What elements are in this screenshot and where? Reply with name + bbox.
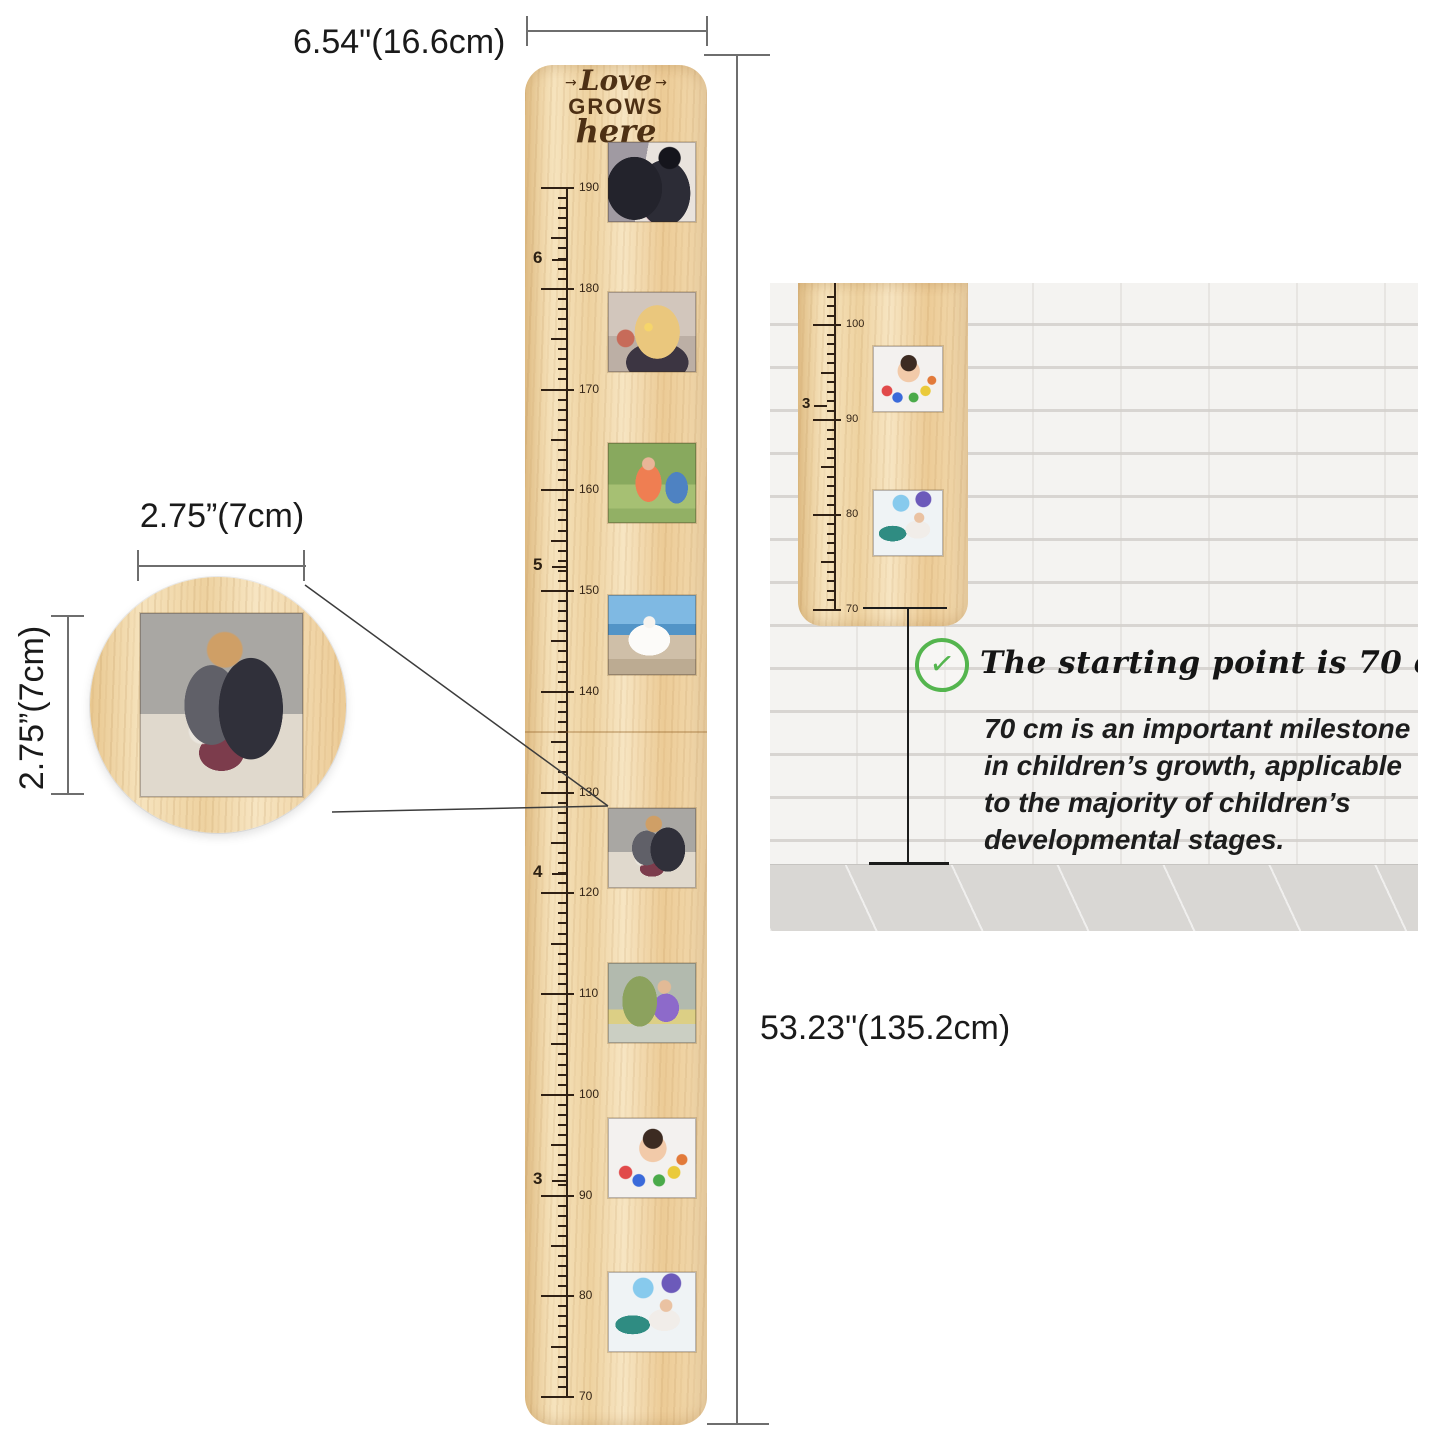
tick-mark bbox=[551, 439, 567, 441]
tick-mark bbox=[827, 523, 835, 525]
tick-mark bbox=[827, 533, 835, 535]
tick-mark bbox=[558, 620, 567, 622]
milestone-description-line: in children’s growth, applicable bbox=[984, 747, 1410, 784]
tick-mark bbox=[558, 1275, 567, 1277]
tick-mark bbox=[827, 315, 835, 317]
tick-mark bbox=[821, 372, 835, 374]
tick-mark bbox=[541, 1396, 574, 1398]
tick-mark bbox=[827, 381, 835, 383]
tick-mark bbox=[558, 368, 567, 370]
inset-height-cap-bottom bbox=[51, 793, 84, 795]
feet-label: 3 bbox=[533, 1169, 542, 1189]
tick-mark bbox=[558, 1305, 567, 1307]
tick-mark bbox=[558, 378, 567, 380]
tick-mark bbox=[558, 1084, 567, 1086]
tick-mark bbox=[551, 237, 567, 239]
inset-width-dimension-label: 2.75”(7cm) bbox=[120, 496, 324, 536]
tick-mark bbox=[558, 530, 567, 532]
tick-mark bbox=[541, 892, 574, 894]
cm-label: 100 bbox=[846, 317, 880, 331]
tick-mark bbox=[558, 1315, 567, 1317]
tick-mark bbox=[558, 802, 567, 804]
tick-mark bbox=[558, 1386, 567, 1388]
tick-mark bbox=[827, 495, 835, 497]
tick-mark bbox=[558, 812, 567, 814]
feet-label: 4 bbox=[533, 862, 542, 882]
tick-mark bbox=[558, 358, 567, 360]
tick-mark bbox=[541, 389, 574, 391]
tick-mark bbox=[558, 771, 567, 773]
tick-mark bbox=[827, 400, 835, 402]
tick-mark bbox=[827, 343, 835, 345]
width-dimension-label: 6.54"(16.6cm) bbox=[293, 22, 505, 62]
tick-mark bbox=[827, 410, 835, 412]
tick-mark bbox=[558, 197, 567, 199]
tick-mark bbox=[558, 832, 567, 834]
tick-mark bbox=[827, 571, 835, 573]
tick-mark bbox=[551, 842, 567, 844]
tick-mark bbox=[558, 1033, 567, 1035]
tick-mark bbox=[558, 701, 567, 703]
mini-growth-chart: 1009080703 bbox=[798, 283, 968, 626]
tick-mark bbox=[558, 278, 567, 280]
feet-dash bbox=[814, 405, 827, 407]
tick-mark bbox=[827, 353, 835, 355]
inset-width-dimension-line bbox=[138, 565, 306, 567]
start-height-line bbox=[863, 607, 947, 609]
tick-mark bbox=[558, 1064, 567, 1066]
growth-chart-ruler: →Love→ GROWS here 1901801701601501401301… bbox=[525, 65, 707, 1425]
feet-dash bbox=[552, 566, 566, 568]
tick-mark bbox=[558, 1134, 567, 1136]
tick-mark bbox=[558, 1325, 567, 1327]
inset-height-cap-top bbox=[51, 615, 84, 617]
tick-mark bbox=[558, 479, 567, 481]
milestone-description-line: to the majority of children’s bbox=[984, 784, 1410, 821]
check-icon: ✓ bbox=[912, 635, 973, 696]
tick-mark bbox=[558, 1023, 567, 1025]
tick-mark bbox=[558, 1053, 567, 1055]
checkmark-glyph: ✓ bbox=[927, 648, 956, 681]
wall-scene-panel: 1009080703 ✓ The starting point is 70 cm… bbox=[770, 283, 1418, 931]
tick-mark bbox=[558, 1184, 567, 1186]
width-dimension-tick-left bbox=[526, 16, 528, 46]
floor-to-70cm-line bbox=[907, 607, 909, 864]
feet-label: 5 bbox=[533, 555, 542, 575]
tick-mark bbox=[541, 691, 574, 693]
tick-mark bbox=[827, 391, 835, 393]
tick-mark bbox=[827, 504, 835, 506]
floor-line-cap bbox=[869, 862, 949, 865]
tick-mark bbox=[558, 570, 567, 572]
tick-mark bbox=[551, 1346, 567, 1348]
tick-mark bbox=[541, 187, 574, 189]
tick-mark bbox=[827, 485, 835, 487]
tick-mark bbox=[558, 751, 567, 753]
birthday-candles-photo bbox=[608, 292, 696, 372]
tick-mark bbox=[558, 912, 567, 914]
tick-mark bbox=[558, 429, 567, 431]
height-dimension-line bbox=[736, 54, 738, 1425]
tick-mark bbox=[541, 489, 574, 491]
tick-mark bbox=[541, 590, 574, 592]
tick-mark bbox=[558, 1366, 567, 1368]
painted-hands-photo bbox=[608, 1118, 696, 1198]
tick-mark bbox=[827, 552, 835, 554]
tick-mark bbox=[813, 419, 841, 421]
tick-mark bbox=[558, 862, 567, 864]
tick-mark bbox=[558, 449, 567, 451]
tick-mark bbox=[558, 1174, 567, 1176]
feet-label: 3 bbox=[802, 394, 810, 414]
tick-mark bbox=[827, 599, 835, 601]
inset-width-tick-right bbox=[303, 550, 305, 581]
marathon-photo bbox=[608, 443, 696, 523]
tick-mark bbox=[558, 580, 567, 582]
tick-mark bbox=[558, 1336, 567, 1338]
tick-mark bbox=[541, 1295, 574, 1297]
tick-mark bbox=[558, 781, 567, 783]
feet-dash bbox=[552, 259, 566, 261]
height-dimension-cap-top bbox=[704, 54, 770, 56]
tick-mark bbox=[821, 561, 835, 563]
school-walk-photo bbox=[608, 963, 696, 1043]
tick-mark bbox=[827, 476, 835, 478]
tick-mark bbox=[558, 1285, 567, 1287]
tick-mark bbox=[558, 328, 567, 330]
tick-mark bbox=[558, 983, 567, 985]
tick-mark bbox=[558, 217, 567, 219]
tick-mark bbox=[558, 1164, 567, 1166]
tick-mark bbox=[558, 1114, 567, 1116]
tick-mark bbox=[558, 922, 567, 924]
tick-mark bbox=[813, 324, 841, 326]
floor bbox=[770, 864, 1418, 931]
tick-mark bbox=[827, 334, 835, 336]
feet-dash bbox=[552, 1180, 566, 1182]
cm-scale: 1901801701601501401301201101009080706543 bbox=[525, 65, 707, 1425]
travel-vista-photo bbox=[608, 595, 696, 675]
tick-mark bbox=[558, 852, 567, 854]
tick-mark bbox=[541, 1195, 574, 1197]
tick-mark bbox=[558, 509, 567, 511]
tick-mark bbox=[558, 318, 567, 320]
tick-mark bbox=[551, 1144, 567, 1146]
tick-mark bbox=[558, 1215, 567, 1217]
tick-mark bbox=[558, 1265, 567, 1267]
tick-mark bbox=[558, 268, 567, 270]
tick-mark bbox=[558, 1235, 567, 1237]
tick-mark bbox=[558, 399, 567, 401]
tick-mark bbox=[558, 207, 567, 209]
tick-mark bbox=[541, 288, 574, 290]
tick-mark bbox=[558, 671, 567, 673]
cm-label: 170 bbox=[579, 382, 613, 396]
tick-mark bbox=[558, 409, 567, 411]
tick-mark bbox=[558, 298, 567, 300]
tick-mark bbox=[558, 681, 567, 683]
tick-mark bbox=[541, 1094, 574, 1096]
tick-mark bbox=[551, 338, 567, 340]
inset-height-dimension-label: 2.75”(7cm) bbox=[12, 606, 52, 810]
tick-mark bbox=[558, 963, 567, 965]
tick-mark bbox=[558, 348, 567, 350]
tick-mark bbox=[558, 953, 567, 955]
painted-hands-photo-mini bbox=[873, 346, 943, 412]
tick-mark bbox=[541, 792, 574, 794]
tick-mark bbox=[551, 640, 567, 642]
tick-mark bbox=[558, 469, 567, 471]
tick-mark bbox=[827, 305, 835, 307]
tick-mark bbox=[827, 296, 835, 298]
milestone-description-line: developmental stages. bbox=[984, 821, 1410, 858]
tick-mark bbox=[558, 519, 567, 521]
feet-label: 6 bbox=[533, 248, 542, 268]
tick-mark bbox=[558, 1205, 567, 1207]
backpack-girl-photo-closeup bbox=[140, 613, 303, 797]
tick-mark bbox=[551, 1043, 567, 1045]
tick-mark bbox=[827, 448, 835, 450]
starting-point-headline: The starting point is 70 cm. bbox=[980, 643, 1418, 683]
tick-mark bbox=[558, 761, 567, 763]
tick-mark bbox=[551, 943, 567, 945]
tick-mark bbox=[541, 993, 574, 995]
tick-mark bbox=[558, 1356, 567, 1358]
tick-mark bbox=[827, 429, 835, 431]
tick-mark bbox=[558, 550, 567, 552]
cm-label: 100 bbox=[579, 1087, 613, 1101]
tick-mark bbox=[558, 1003, 567, 1005]
tick-mark bbox=[558, 882, 567, 884]
board-joint-seam bbox=[525, 731, 707, 733]
tick-mark bbox=[813, 514, 841, 516]
tick-mark bbox=[558, 711, 567, 713]
tick-mark bbox=[551, 540, 567, 542]
feet-dash bbox=[552, 873, 566, 875]
cm-label: 70 bbox=[579, 1389, 613, 1403]
photo-frame-closeup bbox=[90, 577, 346, 833]
width-dimension-tick-right bbox=[706, 16, 708, 46]
tick-mark bbox=[558, 610, 567, 612]
tick-mark bbox=[558, 1154, 567, 1156]
tick-mark bbox=[827, 580, 835, 582]
tick-mark bbox=[827, 542, 835, 544]
tick-mark bbox=[821, 466, 835, 468]
height-dimension-label: 53.23"(135.2cm) bbox=[760, 1008, 1010, 1048]
growth-chart-product-infographic: 6.54"(16.6cm) 53.23"(135.2cm) →Love→ GRO… bbox=[0, 0, 1445, 1445]
cm-label: 130 bbox=[579, 785, 613, 799]
tick-mark bbox=[558, 1255, 567, 1257]
tick-mark bbox=[558, 1124, 567, 1126]
tick-mark bbox=[558, 308, 567, 310]
tick-mark bbox=[558, 419, 567, 421]
tick-mark bbox=[558, 459, 567, 461]
tick-mark bbox=[558, 973, 567, 975]
inset-height-dimension-line bbox=[67, 616, 69, 795]
tick-mark bbox=[827, 457, 835, 459]
tick-mark bbox=[558, 650, 567, 652]
tick-mark bbox=[558, 227, 567, 229]
graduation-photo bbox=[608, 142, 696, 222]
tick-mark bbox=[558, 1225, 567, 1227]
tick-mark bbox=[813, 609, 841, 611]
inset-width-tick-left bbox=[137, 550, 139, 581]
tick-mark bbox=[558, 1074, 567, 1076]
tick-mark bbox=[558, 1104, 567, 1106]
tick-mark bbox=[551, 741, 567, 743]
cm-label: 140 bbox=[579, 684, 613, 698]
birthday-party-photo bbox=[608, 1272, 696, 1352]
tick-mark bbox=[558, 600, 567, 602]
tick-mark bbox=[827, 362, 835, 364]
tick-mark bbox=[558, 661, 567, 663]
tick-mark bbox=[558, 933, 567, 935]
tick-mark bbox=[827, 438, 835, 440]
tick-mark bbox=[558, 822, 567, 824]
tick-mark bbox=[558, 499, 567, 501]
tick-mark bbox=[558, 1376, 567, 1378]
mini-cm-scale: 1009080703 bbox=[798, 283, 968, 626]
tick-mark bbox=[551, 1245, 567, 1247]
height-dimension-cap-bottom bbox=[707, 1423, 769, 1425]
milestone-description-line: 70 cm is an important milestone bbox=[984, 710, 1410, 747]
tick-mark bbox=[558, 630, 567, 632]
tick-mark bbox=[558, 902, 567, 904]
birthday-party-photo-mini bbox=[873, 490, 943, 556]
tick-mark bbox=[558, 1013, 567, 1015]
tick-mark bbox=[558, 721, 567, 723]
tick-mark bbox=[827, 590, 835, 592]
cm-label: 90 bbox=[846, 412, 880, 426]
width-dimension-line bbox=[527, 30, 707, 32]
milestone-description: 70 cm is an important milestone in child… bbox=[984, 710, 1410, 858]
tick-mark bbox=[558, 247, 567, 249]
tick-mark bbox=[558, 560, 567, 562]
backpack-girl-photo bbox=[608, 808, 696, 888]
